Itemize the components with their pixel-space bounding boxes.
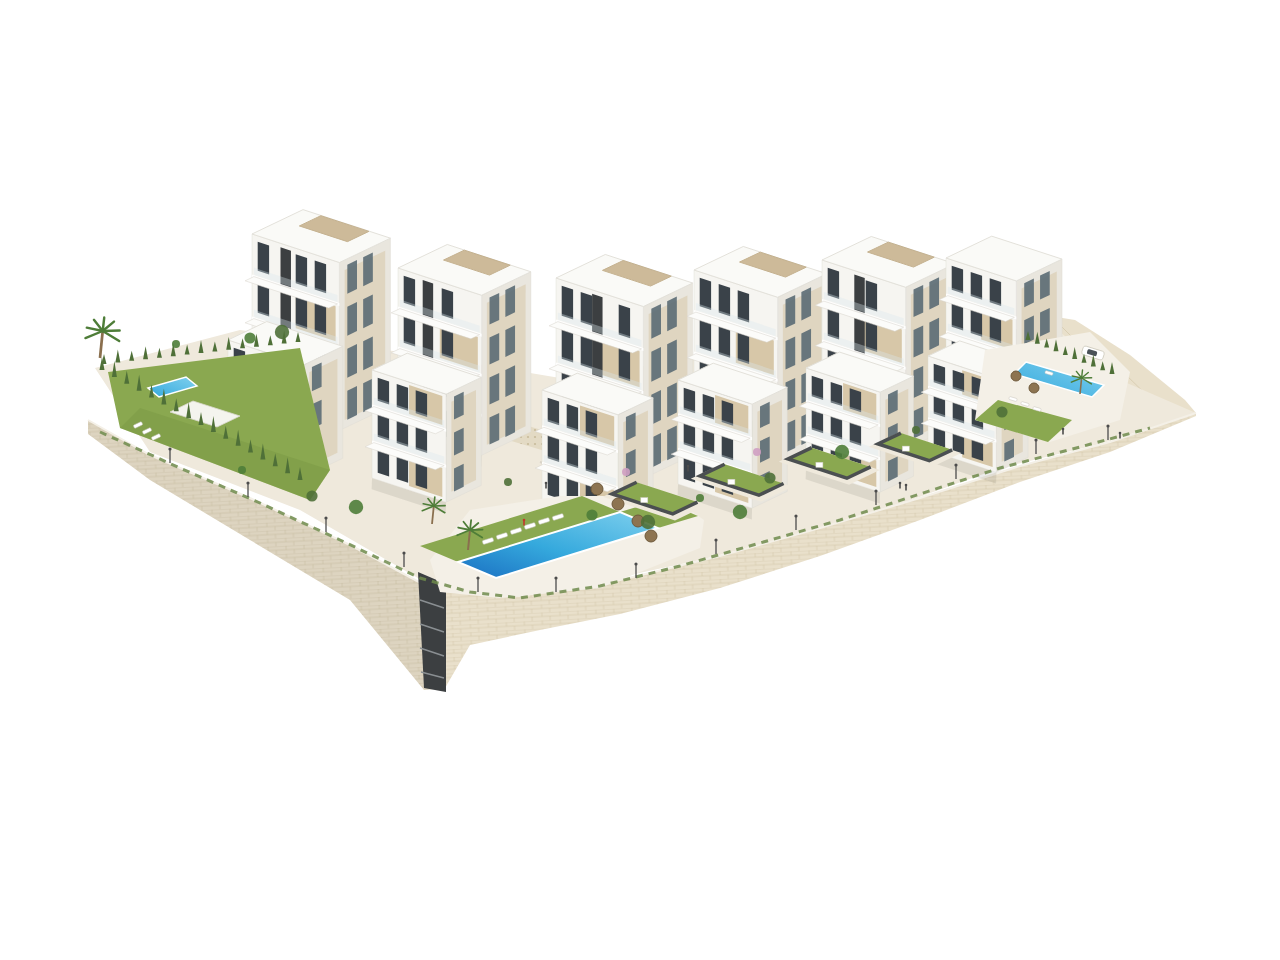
shrub	[504, 478, 512, 486]
side-window	[505, 285, 515, 317]
side-window	[363, 379, 373, 413]
side-window	[914, 285, 924, 317]
lamp-head	[1034, 438, 1037, 441]
side-window	[667, 297, 677, 332]
side-window	[914, 366, 924, 398]
lamp-head	[168, 447, 171, 450]
side-window	[490, 333, 500, 365]
garden-furniture	[902, 446, 909, 451]
side-window	[760, 402, 770, 428]
side-window	[454, 464, 464, 492]
side-window	[347, 344, 357, 378]
side-window	[363, 253, 373, 287]
parasol	[1011, 371, 1021, 381]
lamp-head	[634, 562, 637, 565]
side-window	[667, 340, 677, 375]
side-window	[760, 436, 770, 462]
side-window	[363, 295, 373, 329]
person-head	[905, 484, 908, 487]
block-2-front	[365, 353, 481, 513]
parasol	[1029, 383, 1039, 393]
shrub	[835, 445, 849, 459]
shrub	[244, 332, 255, 343]
lamp-head	[554, 576, 557, 579]
side-window	[347, 302, 357, 336]
lamp-head	[246, 481, 249, 484]
side-window	[347, 260, 357, 294]
side-window	[312, 362, 322, 391]
lamp-head	[1106, 424, 1109, 427]
side-window	[786, 295, 796, 328]
person-head	[545, 482, 548, 485]
garden-furniture	[728, 479, 735, 484]
person-head	[1119, 432, 1122, 435]
side-window	[929, 277, 939, 309]
garden-furniture	[641, 498, 648, 503]
side-window	[490, 373, 500, 405]
palm-frond	[470, 520, 471, 530]
side-window	[505, 365, 515, 397]
side-window	[490, 293, 500, 325]
side-window	[786, 336, 796, 369]
shrub	[349, 500, 363, 514]
side-window	[454, 392, 464, 420]
parasol	[591, 483, 603, 495]
palm-frond	[434, 497, 435, 506]
side-window	[914, 325, 924, 357]
side-window	[347, 386, 357, 420]
side-window	[651, 347, 661, 382]
garden-furniture	[816, 462, 823, 467]
side-window	[667, 383, 677, 418]
lamp-head	[324, 516, 327, 519]
shrub	[733, 505, 747, 519]
side-window	[454, 428, 464, 456]
shrub	[306, 490, 317, 501]
side-window	[1040, 271, 1050, 300]
shrub	[696, 494, 704, 502]
shrub	[641, 515, 655, 529]
side-window	[505, 325, 515, 357]
shrub	[764, 472, 775, 483]
lamp-head	[954, 463, 957, 466]
side-window	[1024, 279, 1034, 308]
lamp-head	[714, 538, 717, 541]
side-window	[363, 337, 373, 371]
side-window	[505, 405, 515, 437]
person-head	[687, 465, 690, 468]
palm-frond	[1082, 370, 1083, 378]
residential-complex-render	[0, 0, 1280, 960]
lamp-head	[402, 551, 405, 554]
architectural-render-canvas	[0, 0, 1280, 960]
side-window	[490, 413, 500, 445]
side-window	[929, 318, 939, 350]
side-window	[801, 287, 811, 320]
shrub	[912, 426, 920, 434]
parasol	[645, 530, 657, 542]
shrub	[238, 466, 246, 474]
side-window	[1040, 308, 1050, 337]
shrub	[275, 325, 289, 339]
parasol	[612, 498, 624, 510]
shrub	[586, 509, 597, 520]
shrub	[996, 406, 1007, 417]
flowering-shrub	[622, 468, 630, 476]
palm-frond	[103, 318, 105, 331]
person-head	[1062, 428, 1065, 431]
lamp-head	[794, 514, 797, 517]
side-window	[626, 412, 636, 440]
lamp-head	[874, 489, 877, 492]
lamp-head	[476, 576, 479, 579]
person-head	[523, 519, 526, 522]
shrub	[172, 340, 180, 348]
flowering-shrub	[753, 448, 761, 456]
person-head	[899, 482, 902, 485]
side-window	[651, 304, 661, 339]
side-window	[801, 329, 811, 362]
